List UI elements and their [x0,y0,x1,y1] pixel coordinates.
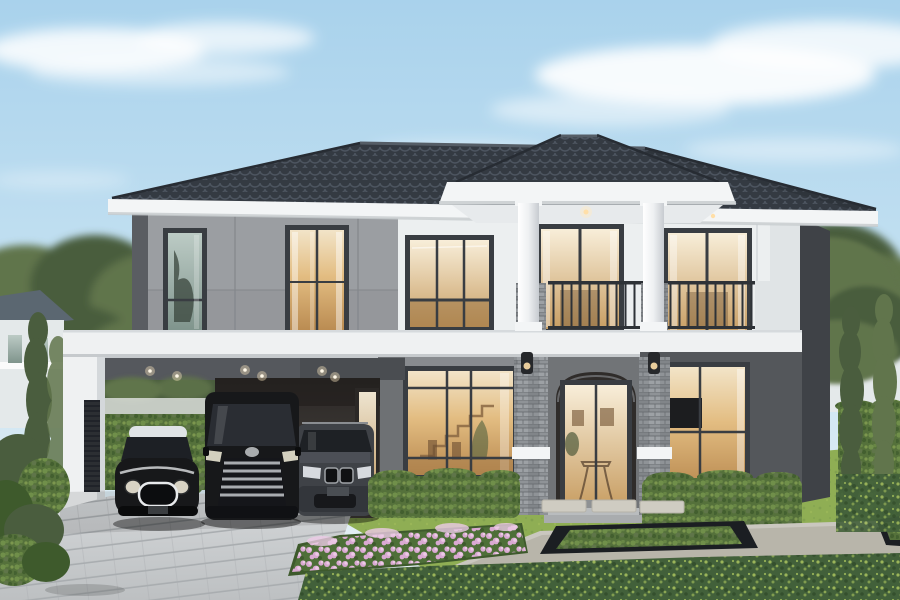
column-left [515,199,542,331]
bedroom-window-center [405,235,494,332]
pier-cap-right [637,447,672,459]
corner-window [163,228,207,336]
stairs-window [403,366,518,480]
windshield [121,437,193,461]
wall-sconce-left [521,352,533,374]
emblem [245,447,259,457]
vent-panel [84,400,100,492]
pier-cap-left [512,447,550,459]
bedroom-window-left [285,225,349,337]
architectural-render [0,0,900,600]
railing-end-post [755,281,771,331]
license-plate [327,487,349,496]
chrome-grille-outline [139,483,177,506]
front-door [560,380,632,510]
headlight [357,466,371,479]
side-wall-right [800,218,830,503]
groundcover-right [836,474,900,532]
chrome-grille [218,458,286,506]
portico-downlight [584,210,589,215]
portico-fascia [439,182,736,223]
stepping-stones [542,500,684,513]
wall-sconce-right [648,352,660,374]
car-suv [291,423,379,524]
white-return-wall [770,218,802,334]
column-right [640,199,667,331]
hedge-front-left [368,468,520,518]
car-minivan [201,392,301,529]
license-plate [148,506,168,514]
scene-canvas [0,0,900,600]
headlight [303,466,321,479]
hedge-front-right [642,470,802,530]
soffit-downlight-right [711,214,715,218]
corner-trim [132,208,148,335]
